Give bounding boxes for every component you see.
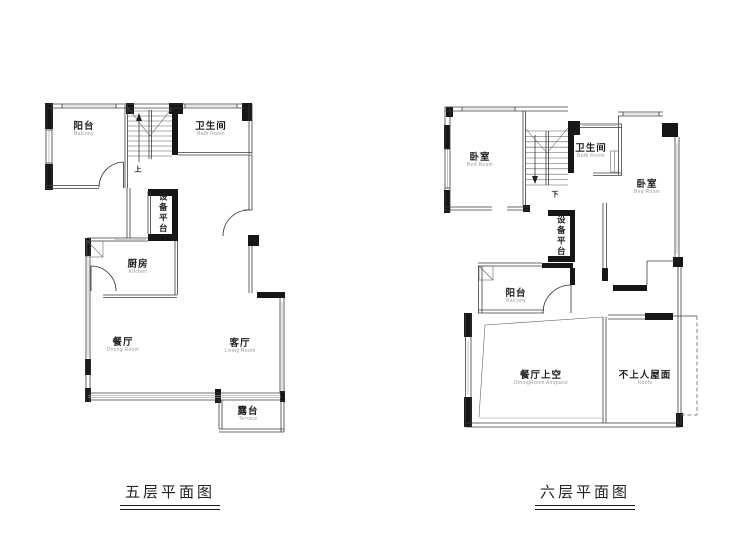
room-label-kitchen: 厨房 Kitchen [127, 260, 148, 275]
room-label-bedroom-right: 卧室 Bed Room [634, 180, 660, 195]
caption-right-underline [535, 505, 635, 510]
room-label-bathroom: 卫生间 Bath Room [195, 122, 227, 137]
room-name-en: Living Room [224, 348, 255, 353]
room-name-en: Balcony [505, 298, 526, 303]
walls-group [46, 104, 284, 432]
room-label-living: 客厅 Living Room [224, 339, 255, 354]
windows-group [46, 104, 282, 398]
room-label-terrace: 露台 Terrace [237, 407, 258, 422]
room-label-roof: 不上人屋面 Roofs [619, 371, 672, 386]
room-name-en: Dining Room [107, 347, 139, 352]
stair-direction-down: 下 [552, 192, 559, 199]
room-label-dining: 餐厅 Dining Room [107, 338, 139, 353]
caption-right-text: 六层平面图 [535, 481, 635, 502]
caption-left-plan: 五层平面图 [120, 481, 220, 510]
room-name-en: Bed Room [467, 162, 493, 167]
room-label-bathroom: 卫生间 Bath Room [575, 144, 607, 159]
room-label-balcony: 阳台 Balcony [505, 289, 526, 304]
room-name-en: Bath Room [195, 131, 227, 136]
doors-group [91, 162, 252, 291]
stairs-group [128, 108, 172, 162]
room-label-bedroom-left: 卧室 Bed Room [467, 153, 493, 168]
caption-left-text: 五层平面图 [120, 481, 220, 502]
room-label-equipment: 设备平台 [557, 215, 566, 257]
room-name-en: Roofs [619, 380, 672, 385]
room-label-dining-void: 餐厅上空 DiningRoom Airspace [514, 371, 568, 386]
stair-direction-up: 上 [135, 167, 142, 174]
caption-right-plan: 六层平面图 [535, 481, 635, 510]
floorplan-right: 卧室 Bed Room 卫生间 Bath Room 卧室 Bed Room 设备… [435, 95, 715, 447]
caption-left-underline [120, 505, 220, 510]
room-name-en: DiningRoom Airspace [514, 380, 568, 385]
doors-group [543, 285, 571, 313]
room-name-en: Terrace [237, 416, 258, 421]
stairs-group [525, 128, 568, 185]
room-name-en: Kitchen [127, 269, 148, 274]
roof-dashed-edge [681, 316, 697, 415]
room-name-en: Balcony [73, 131, 94, 136]
floorplan-left: 阳台 Balcony 卫生间 Bath Room 设备平台 厨房 Kitchen… [35, 92, 290, 444]
room-label-balcony: 阳台 Balcony [73, 122, 94, 137]
room-name-en: Bed Room [634, 189, 660, 194]
floorplan-left-drawing [35, 92, 290, 444]
floorplan-page: { "colors": { "background": "#ffffff", "… [0, 0, 750, 560]
room-name-en: Bath Room [575, 153, 607, 158]
room-label-equipment: 设备平台 [159, 192, 168, 234]
